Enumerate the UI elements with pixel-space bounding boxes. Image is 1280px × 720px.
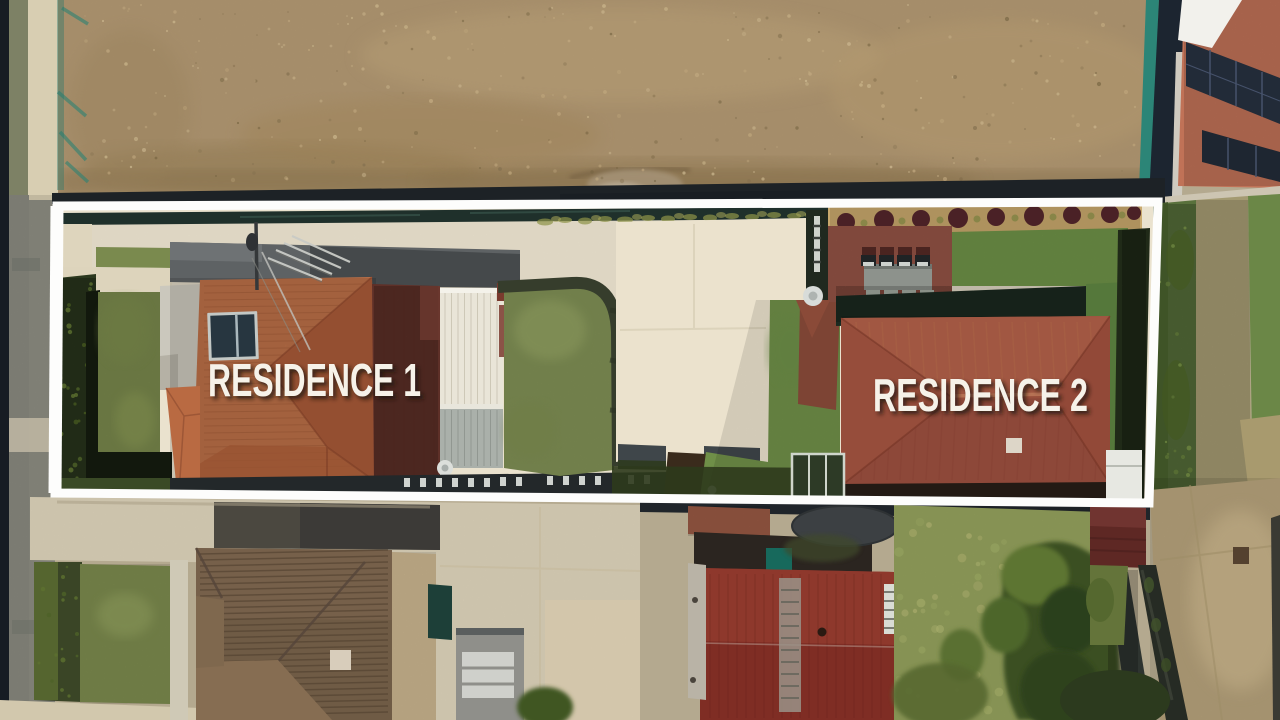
svg-text:RESIDENCE 1: RESIDENCE 1	[208, 354, 421, 406]
svg-text:RESIDENCE 2: RESIDENCE 2	[873, 369, 1088, 421]
